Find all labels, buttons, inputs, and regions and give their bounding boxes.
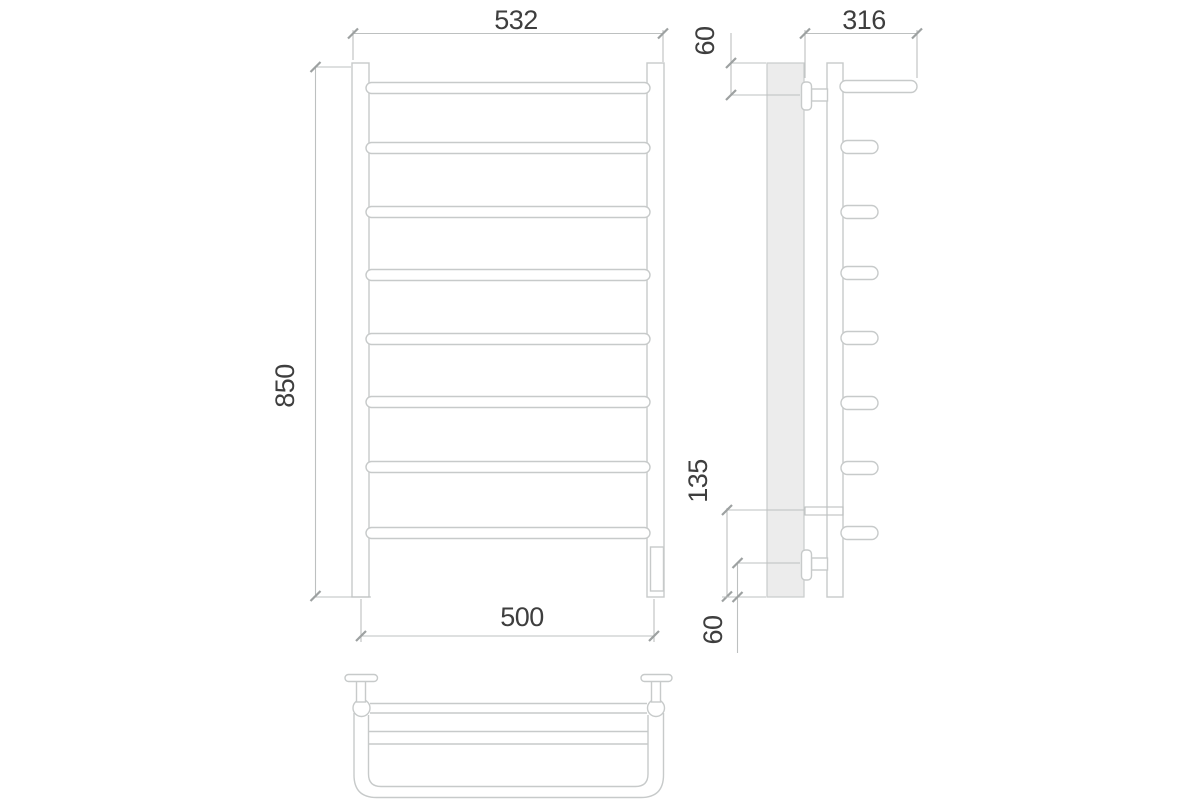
front-bar: [366, 83, 650, 94]
dimension-label-316: 316: [842, 5, 886, 35]
top-view-left-stem: [357, 681, 366, 702]
dimension-label-60-top: 60: [690, 26, 720, 55]
front-bar: [366, 462, 650, 473]
top-view-right-stem: [652, 681, 661, 702]
dimension-axis-width: 500: [356, 599, 659, 642]
wall-section: [767, 63, 804, 597]
side-shelf-bar: [840, 81, 917, 93]
bracket-flange: [802, 82, 812, 110]
side-rail: [827, 63, 843, 597]
front-bar: [366, 397, 650, 408]
top-view-right-flange: [641, 675, 672, 682]
front-bar: [366, 334, 650, 345]
bottom-wall-bracket: [802, 550, 828, 580]
front-view: [352, 63, 664, 597]
technical-drawing-page: 532 850 500: [0, 0, 1200, 800]
front-bar: [366, 143, 650, 154]
heating-element-box: [651, 547, 664, 591]
shelf-tube-inner: [369, 715, 649, 787]
front-bars: [366, 83, 650, 539]
side-bar: [841, 527, 878, 540]
top-wall-bracket: [802, 82, 828, 110]
bracket-stem: [812, 558, 828, 570]
bracket-stem: [812, 89, 828, 101]
towel-rail-drawing: 532 850 500: [0, 0, 1200, 800]
top-view-left-flange: [345, 675, 378, 682]
side-bar: [841, 462, 878, 475]
front-bar: [366, 207, 650, 218]
bracket-flange: [802, 550, 812, 580]
side-bar: [841, 332, 878, 345]
dimension-label-60-bottom: 60: [698, 615, 728, 644]
front-left-rail: [352, 63, 369, 597]
dimension-label-532: 532: [494, 5, 538, 35]
side-bars: [841, 141, 878, 540]
dimension-label-850: 850: [270, 364, 300, 408]
side-view: [767, 63, 917, 597]
front-bar: [366, 270, 650, 281]
front-bar: [366, 528, 650, 539]
side-bar: [841, 206, 878, 219]
dimension-overall-width: 532: [348, 5, 668, 62]
side-bar: [841, 397, 878, 410]
side-bar: [841, 267, 878, 280]
dimension-shelf-depth: 316: [800, 5, 922, 78]
top-view: [345, 675, 672, 798]
side-bar: [841, 141, 878, 154]
shelf-tube-outer: [354, 713, 664, 798]
dimension-label-500: 500: [500, 602, 544, 632]
front-right-rail: [647, 63, 664, 597]
dimension-label-135: 135: [683, 459, 713, 503]
